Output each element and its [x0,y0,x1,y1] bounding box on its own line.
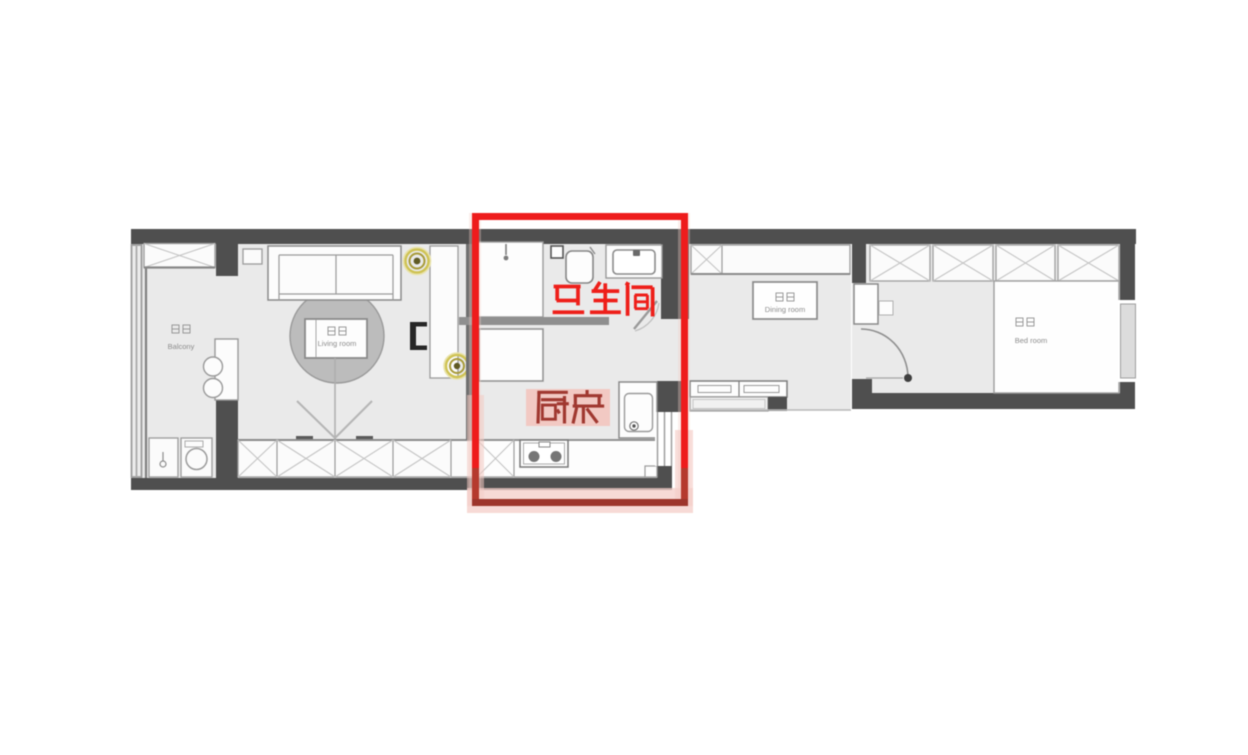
svg-text:Dining room: Dining room [765,305,805,314]
svg-text:Balcony: Balcony [168,342,195,351]
svg-text:Bed room: Bed room [1015,336,1048,345]
svg-text:Living room: Living room [318,339,357,348]
